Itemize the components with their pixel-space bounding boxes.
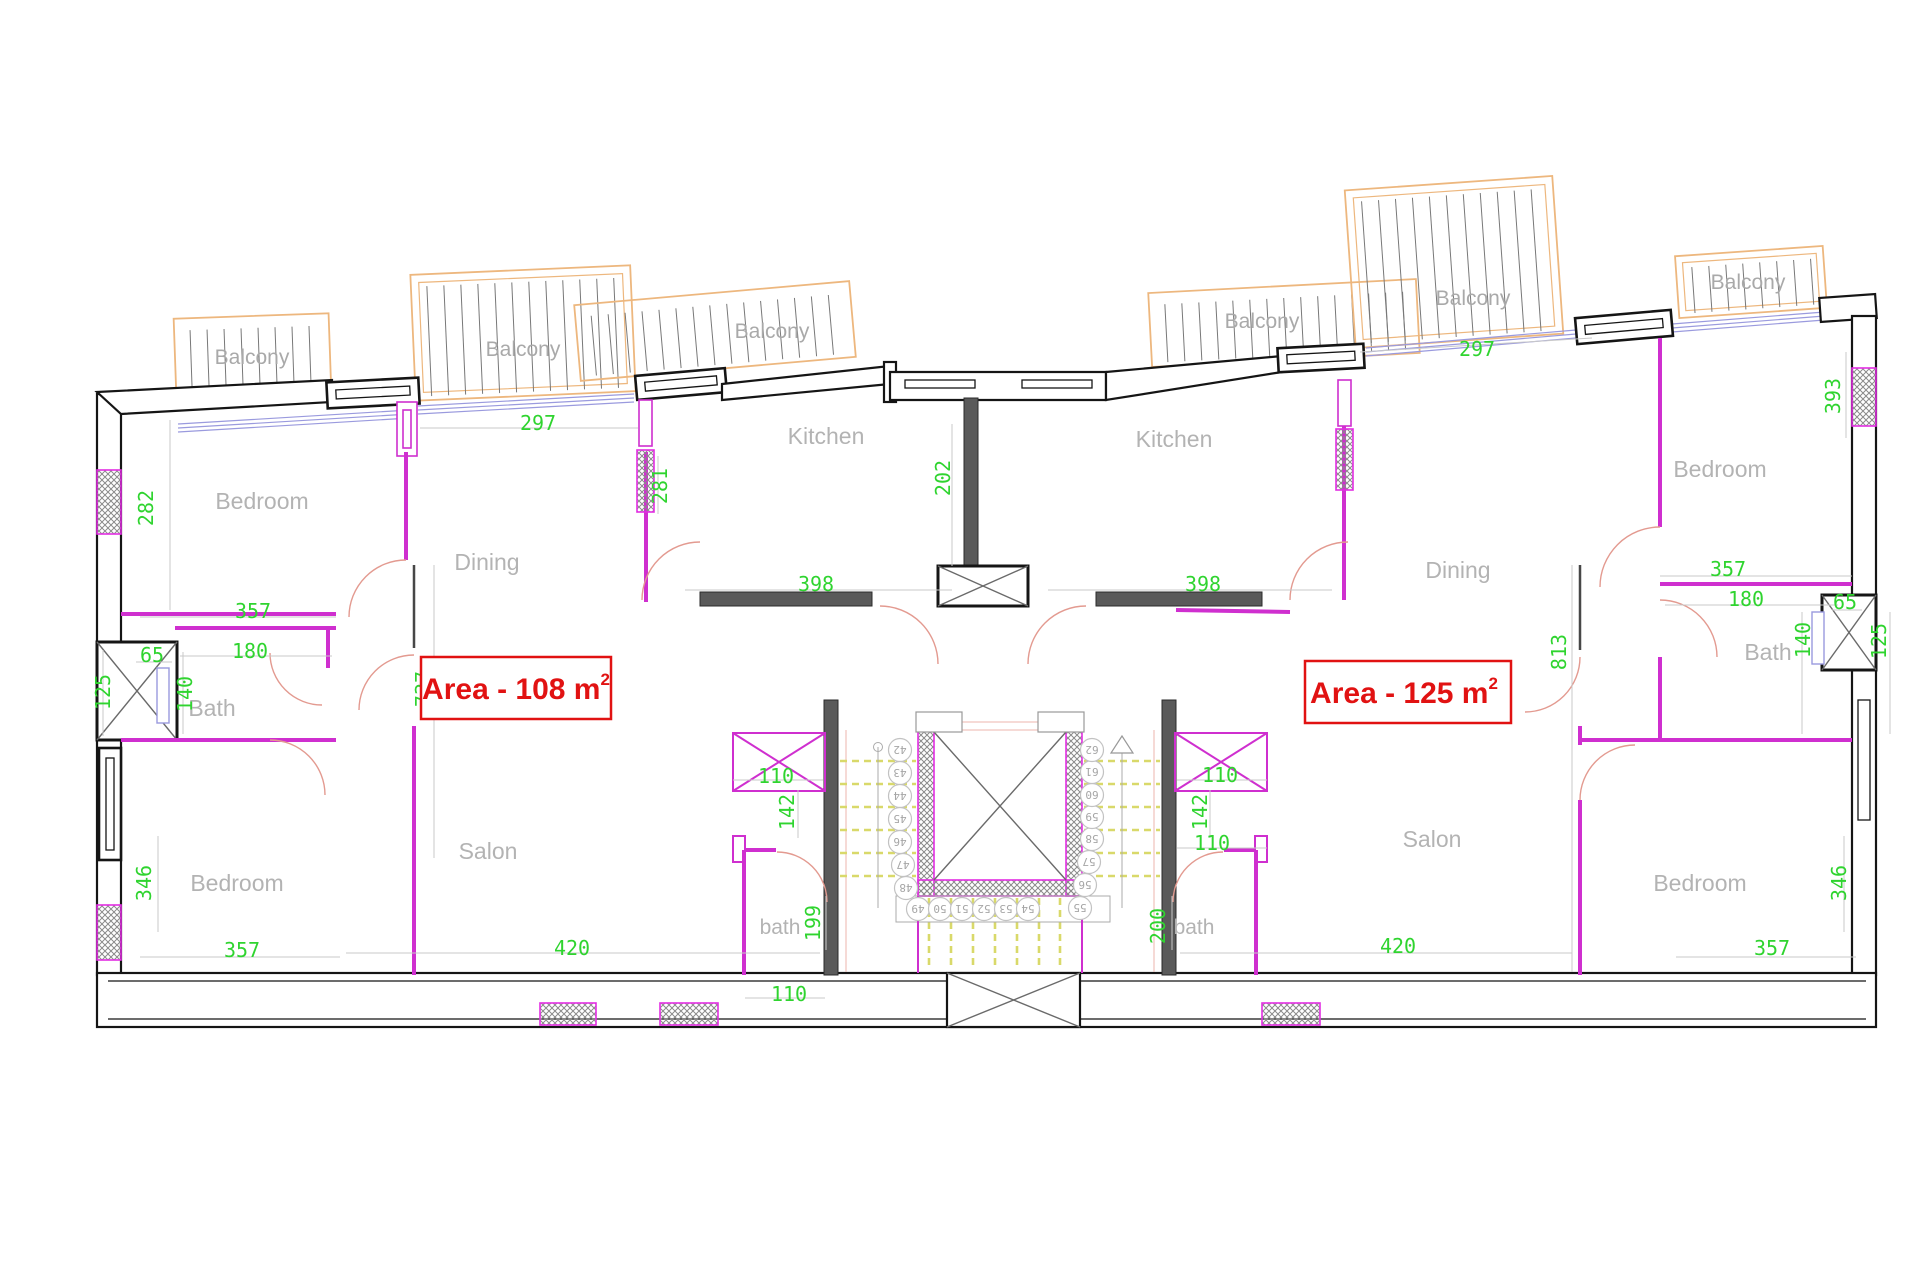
- room-label-bedroom: Bedroom: [215, 488, 308, 514]
- stair-step-56: 56: [1074, 874, 1097, 897]
- dimension-398: 398: [798, 572, 834, 596]
- stair-step-number: 47: [896, 858, 909, 871]
- area-right-sup: 2: [1488, 674, 1497, 693]
- stair-step-46: 46: [889, 831, 912, 854]
- dimension-140: 140: [1791, 622, 1815, 658]
- balcony-railing-line: [1480, 193, 1490, 335]
- balcony-railing-line: [207, 330, 209, 394]
- stair-step-number: 50: [933, 902, 946, 915]
- balcony-railing-line: [1199, 302, 1202, 360]
- area-label-left: Area - 108 m2: [421, 657, 611, 719]
- room-label-dining: Dining: [1425, 557, 1490, 583]
- dimension-357: 357: [1710, 557, 1746, 581]
- left-wall-window-hatch: [97, 470, 121, 534]
- balcony-railing-line: [444, 285, 449, 395]
- entry-vestibule-shaft: [938, 566, 1028, 606]
- stair-step-number: 46: [893, 835, 906, 848]
- bottom-wall-hatch-2: [660, 1003, 718, 1025]
- stair-step-52: 52: [973, 898, 996, 921]
- dimension-202: 202: [931, 460, 955, 496]
- stair-treads: [840, 761, 1160, 970]
- core-wall-top-right: [1096, 592, 1262, 606]
- room-label-bath: bath: [760, 916, 801, 939]
- dimension-200: 200: [1146, 908, 1170, 944]
- room-label-salon: Salon: [459, 838, 518, 864]
- stair-step-number: 51: [955, 902, 968, 915]
- dimension-297: 297: [520, 411, 556, 435]
- balcony-railing-line: [1362, 201, 1372, 343]
- balcony-railing-line: [1497, 192, 1507, 334]
- balcony-railing-line: [427, 286, 432, 396]
- balcony-railing-line: [642, 311, 647, 371]
- room-label-kitchen: Kitchen: [1136, 426, 1213, 452]
- dimension-199: 199: [801, 905, 825, 941]
- stair-step-number: 59: [1085, 810, 1098, 823]
- stair-step-number: 57: [1082, 855, 1095, 868]
- room-label-kitchen: Kitchen: [788, 423, 865, 449]
- balcony-railing-line: [563, 280, 568, 390]
- balcony-railing-line: [659, 310, 664, 370]
- door-bath-r: [1660, 600, 1717, 657]
- balcony-railing-line: [1395, 199, 1405, 341]
- balcony-label: Balcony: [1711, 271, 1786, 294]
- stair-step-50: 50: [929, 898, 952, 921]
- dimension-140: 140: [173, 676, 197, 712]
- window-kitchen-r: [1277, 344, 1364, 372]
- dimension-346: 346: [132, 865, 156, 901]
- door-bedroom-tr: [1600, 527, 1660, 587]
- balcony-railing-line: [1794, 260, 1797, 306]
- stair-step-55: 55: [1069, 897, 1092, 920]
- dimension-125: 125: [1867, 623, 1891, 659]
- stair-step-48: 48: [895, 877, 918, 900]
- elevator-shaft: [916, 712, 1084, 896]
- stair-step-number: 48: [899, 881, 912, 894]
- dimension-65: 65: [1833, 590, 1857, 614]
- door-bedroom-tl: [349, 560, 406, 617]
- door-bedroom-br: [1580, 745, 1635, 800]
- door-bedroom-bl: [270, 740, 325, 795]
- stair-step-number: 52: [977, 902, 990, 915]
- dimension-813: 813: [1547, 634, 1571, 670]
- center-entry-wall: [964, 398, 978, 570]
- door-entry-right-unit: [1028, 606, 1086, 664]
- balcony-railing-line: [1182, 303, 1185, 361]
- balcony-railing-line: [811, 296, 816, 356]
- dimension-393: 393: [1821, 378, 1845, 414]
- facade-band-kitchen-l: [722, 366, 890, 400]
- room-label-dining: Dining: [454, 549, 519, 575]
- floor-plan-canvas: BalconyBalconyBalconyBalconyBalconyBalco…: [0, 0, 1920, 1280]
- stair-step-number: 49: [911, 902, 924, 915]
- facade-band-bedroom-tl: [97, 380, 332, 414]
- bath-l-window: [157, 668, 169, 723]
- stair-step-42: 42: [889, 739, 912, 762]
- balcony-railing-line: [190, 330, 192, 394]
- stair-step-number: 53: [999, 902, 1012, 915]
- dimension-110: 110: [1202, 763, 1238, 787]
- balcony-railing-line: [1463, 194, 1473, 336]
- balcony-label: Balcony: [735, 320, 810, 343]
- balcony-railing-line: [1378, 200, 1388, 342]
- dimension-142: 142: [775, 794, 799, 830]
- wall-hall-top-r: [1176, 610, 1290, 612]
- stair-step-number: 42: [893, 743, 906, 756]
- stair-step-47: 47: [892, 854, 915, 877]
- stair-step-number: 54: [1021, 902, 1035, 915]
- svg-text:Area - 108 m2: Area - 108 m2: [422, 670, 610, 706]
- stair-step-number: 62: [1085, 743, 1098, 756]
- stair-step-49: 49: [907, 898, 930, 921]
- balcony-labels: BalconyBalconyBalconyBalconyBalconyBalco…: [215, 271, 1786, 369]
- balcony-2: [410, 265, 635, 400]
- room-label-bath: Bath: [1744, 639, 1791, 665]
- balcony-railing-line: [614, 278, 619, 388]
- dimension-110: 110: [1194, 831, 1230, 855]
- balcony-label: Balcony: [1436, 287, 1511, 310]
- area-left-sup: 2: [600, 670, 609, 689]
- door-kitchen-r: [1290, 542, 1348, 600]
- dimension-110: 110: [758, 764, 794, 788]
- door-entry-left-unit: [880, 606, 938, 664]
- floor-plan-drawing: BalconyBalconyBalconyBalconyBalconyBalco…: [0, 0, 1920, 1280]
- dimension-357: 357: [224, 938, 260, 962]
- stair-step-45: 45: [889, 808, 912, 831]
- balcony-railing-line: [1531, 189, 1541, 331]
- dimension-346: 346: [1827, 865, 1851, 901]
- door-kitchen-l: [642, 542, 700, 600]
- stair-step-number: 55: [1073, 901, 1086, 914]
- dimension-297: 297: [1459, 337, 1495, 361]
- stair-step-57: 57: [1078, 851, 1101, 874]
- balcony-railing-line: [727, 304, 732, 364]
- stair-step-61: 61: [1081, 761, 1104, 784]
- balcony-label: Balcony: [486, 338, 561, 361]
- balcony-label: Balcony: [215, 346, 290, 369]
- dimension-110: 110: [771, 982, 807, 1006]
- balcony-railing-line: [529, 282, 534, 392]
- stair-step-58: 58: [1081, 828, 1104, 851]
- stair-step-54: 54: [1017, 898, 1040, 921]
- stair-step-number: 43: [893, 766, 906, 779]
- balcony-railing-line: [608, 314, 613, 374]
- balcony-5: [1345, 176, 1564, 348]
- facade-band-kitchen-r: [1106, 356, 1282, 400]
- room-label-bedroom: Bedroom: [190, 870, 283, 896]
- central-core: [700, 398, 1262, 975]
- dimension-65: 65: [140, 643, 164, 667]
- balcony-label: Balcony: [1225, 310, 1300, 333]
- core-wall-top-left: [700, 592, 872, 606]
- stair-step-number: 45: [893, 812, 906, 825]
- balcony-railing-line: [710, 305, 715, 365]
- stair-step-44: 44: [889, 785, 912, 808]
- bottom-light-shaft: [947, 973, 1080, 1027]
- balcony-railing-line: [1429, 197, 1439, 339]
- dimension-357: 357: [1754, 936, 1790, 960]
- stair-up-arrow: [1111, 736, 1133, 753]
- room-label-bath: bath: [1174, 916, 1215, 939]
- dimension-lines: [103, 338, 1890, 998]
- balcony-railing-line: [676, 308, 681, 368]
- balcony-railing-line: [1216, 302, 1219, 360]
- balcony-railing-line: [1446, 195, 1456, 337]
- area-left-text: Area - 108 m: [422, 673, 600, 706]
- balcony-railing-line: [693, 307, 698, 367]
- balcony-railing-line: [1692, 267, 1695, 313]
- room-label-bedroom: Bedroom: [1653, 870, 1746, 896]
- stair-step-59: 59: [1081, 806, 1104, 829]
- balconies: [174, 176, 1827, 401]
- balcony-railing-line: [546, 281, 551, 391]
- door-hall-l: [359, 655, 414, 710]
- bottom-wall-hatch-1: [540, 1003, 596, 1025]
- right-wall-window-hatch: [1852, 368, 1876, 426]
- stair-step-number: 44: [893, 789, 907, 802]
- balcony-railing-line: [478, 284, 483, 394]
- stair-step-number: 61: [1085, 765, 1098, 778]
- balcony-railing-line: [1514, 191, 1524, 333]
- door-bath-l: [270, 653, 322, 705]
- stair-step-51: 51: [951, 898, 974, 921]
- window-kitchen-l: [635, 368, 727, 400]
- stair-step-62: 62: [1081, 739, 1104, 762]
- door-bath-small-r: [1173, 852, 1223, 902]
- dimension-398: 398: [1185, 572, 1221, 596]
- balcony-railing-line: [597, 279, 602, 389]
- bottom-wall-hatch-3: [1262, 1003, 1320, 1025]
- door-bath-small-l: [777, 852, 827, 902]
- dimension-125: 125: [91, 674, 115, 710]
- dimension-180: 180: [232, 639, 268, 663]
- stair-step-number: 60: [1085, 788, 1098, 801]
- stair-step-53: 53: [995, 898, 1018, 921]
- wall-hatch-kitchen-r: [1336, 429, 1353, 490]
- dimension-180: 180: [1728, 587, 1764, 611]
- area-label-right: Area - 125 m2: [1305, 661, 1511, 723]
- dimension-282: 282: [134, 490, 158, 526]
- dimension-142: 142: [1188, 794, 1212, 830]
- stair-step-60: 60: [1081, 784, 1104, 807]
- balcony-railing-line: [1811, 259, 1814, 305]
- svg-text:Area - 125 m2: Area - 125 m2: [1310, 674, 1498, 710]
- room-label-bedroom: Bedroom: [1673, 456, 1766, 482]
- balcony-railing-line: [1165, 304, 1168, 362]
- balcony-railing-line: [461, 285, 466, 395]
- balcony-railing-line: [591, 316, 596, 376]
- stair-step-number: 58: [1085, 832, 1098, 845]
- balcony-railing-line: [828, 295, 833, 355]
- dimension-420: 420: [554, 936, 590, 960]
- left-wall-hatch-2: [97, 905, 121, 960]
- room-label-salon: Salon: [1403, 826, 1462, 852]
- stair-step-number: 56: [1078, 878, 1091, 891]
- area-right-text: Area - 125 m: [1310, 677, 1488, 710]
- dimension-420: 420: [1380, 934, 1416, 958]
- dimension-357: 357: [235, 599, 271, 623]
- stair-step-43: 43: [889, 762, 912, 785]
- dimension-281: 281: [648, 468, 672, 504]
